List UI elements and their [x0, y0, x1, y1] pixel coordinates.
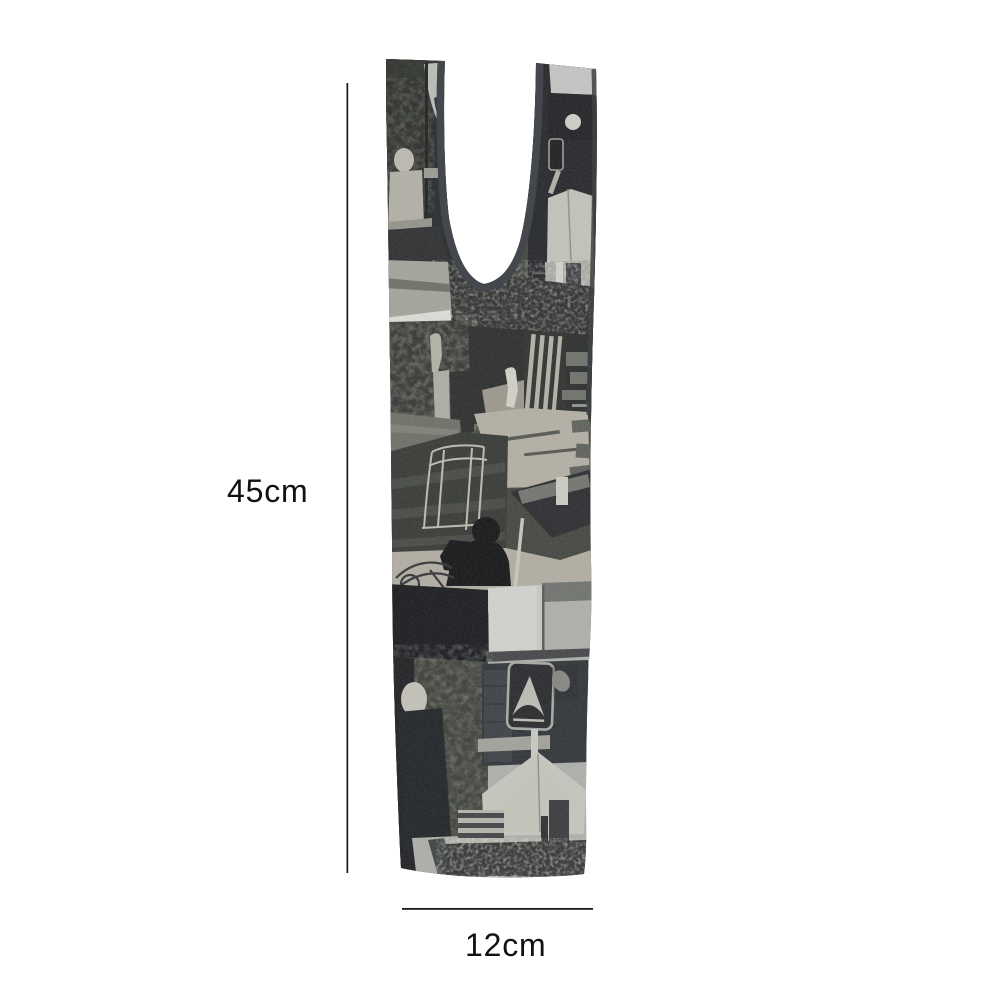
- svg-text:45cm: 45cm: [227, 473, 308, 509]
- svg-text:12cm: 12cm: [465, 927, 546, 963]
